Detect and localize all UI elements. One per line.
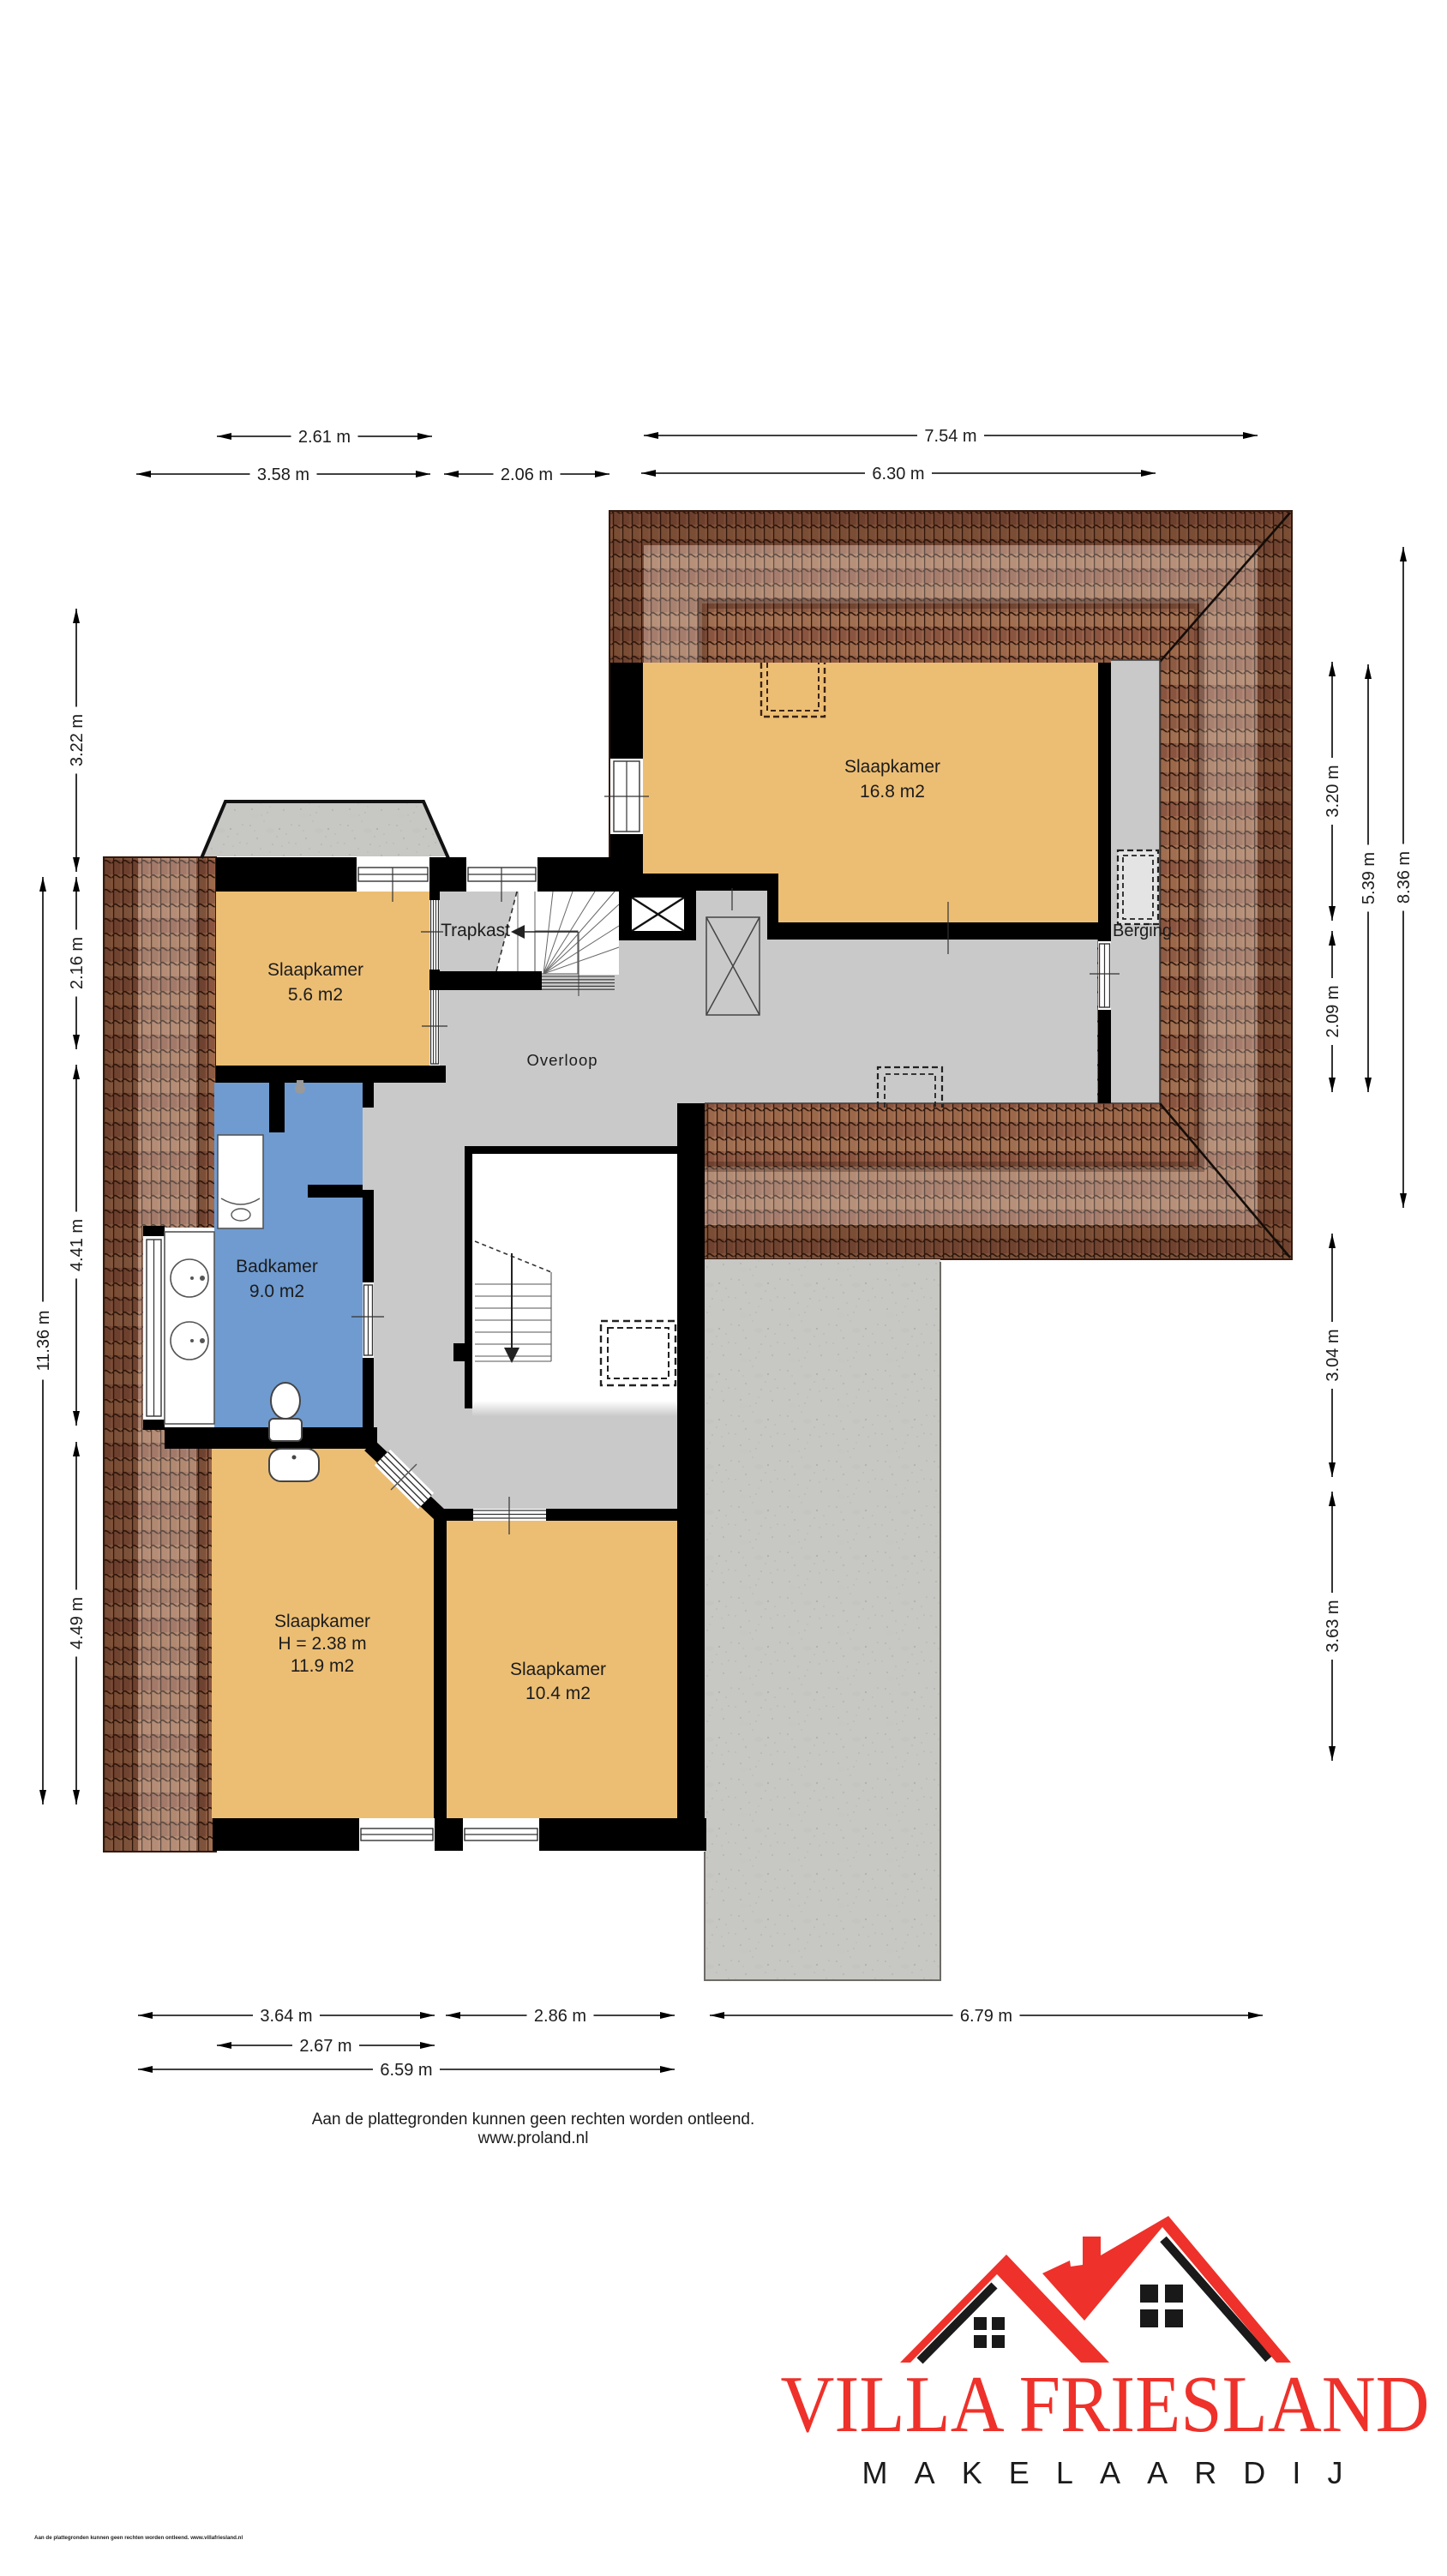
svg-text:4.41 m: 4.41 m: [68, 1219, 87, 1271]
svg-text:5.6 m2: 5.6 m2: [288, 985, 343, 1005]
svg-text:3.64 m: 3.64 m: [260, 2007, 312, 2026]
svg-text:3.63 m: 3.63 m: [1324, 1600, 1342, 1652]
svg-text:Aan de plattegronden kunnen ge: Aan de plattegronden kunnen geen rechten…: [312, 2111, 755, 2129]
svg-text:4.49 m: 4.49 m: [68, 1597, 87, 1649]
svg-text:2.06 m: 2.06 m: [501, 465, 553, 484]
svg-text:Slaapkamer: Slaapkamer: [267, 960, 363, 980]
svg-text:3.20 m: 3.20 m: [1324, 765, 1342, 817]
svg-text:11.9 m2: 11.9 m2: [291, 1656, 354, 1676]
svg-text:Trapkast: Trapkast: [441, 921, 510, 940]
svg-text:2.67 m: 2.67 m: [299, 2037, 351, 2056]
svg-text:www.proland.nl: www.proland.nl: [477, 2129, 589, 2147]
svg-text:6.30 m: 6.30 m: [872, 465, 924, 483]
svg-text:Aan de plattegronden kunnen ge: Aan de plattegronden kunnen geen rechten…: [34, 2535, 243, 2541]
svg-text:Slaapkamer: Slaapkamer: [274, 1612, 370, 1631]
svg-text:3.04 m: 3.04 m: [1324, 1329, 1342, 1381]
svg-text:H = 2.38 m: H = 2.38 m: [278, 1634, 366, 1654]
svg-text:2.09 m: 2.09 m: [1324, 985, 1342, 1037]
svg-text:Badkamer: Badkamer: [236, 1257, 318, 1276]
svg-text:Slaapkamer: Slaapkamer: [844, 757, 940, 777]
svg-text:16.8 m2: 16.8 m2: [860, 782, 925, 802]
svg-text:3.58 m: 3.58 m: [257, 465, 309, 484]
svg-text:Overloop: Overloop: [526, 1051, 597, 1069]
svg-text:9.0 m2: 9.0 m2: [249, 1282, 304, 1301]
svg-text:2.86 m: 2.86 m: [534, 2007, 586, 2026]
svg-text:VILLA FRIESLAND: VILLA FRIESLAND: [781, 2360, 1430, 2449]
svg-text:6.59 m: 6.59 m: [380, 2061, 432, 2080]
svg-text:Slaapkamer: Slaapkamer: [510, 1660, 606, 1679]
svg-text:11.36 m: 11.36 m: [34, 1311, 53, 1372]
svg-text:2.61 m: 2.61 m: [298, 428, 351, 447]
svg-text:Berging: Berging: [1113, 922, 1172, 940]
svg-text:10.4 m2: 10.4 m2: [525, 1684, 591, 1703]
svg-text:8.36 m: 8.36 m: [1395, 851, 1414, 904]
svg-text:3.22 m: 3.22 m: [68, 714, 87, 766]
svg-text:6.79 m: 6.79 m: [960, 2007, 1012, 2026]
svg-text:2.16 m: 2.16 m: [68, 937, 87, 989]
svg-text:7.54 m: 7.54 m: [924, 427, 976, 446]
svg-text:5.39 m: 5.39 m: [1360, 852, 1378, 904]
